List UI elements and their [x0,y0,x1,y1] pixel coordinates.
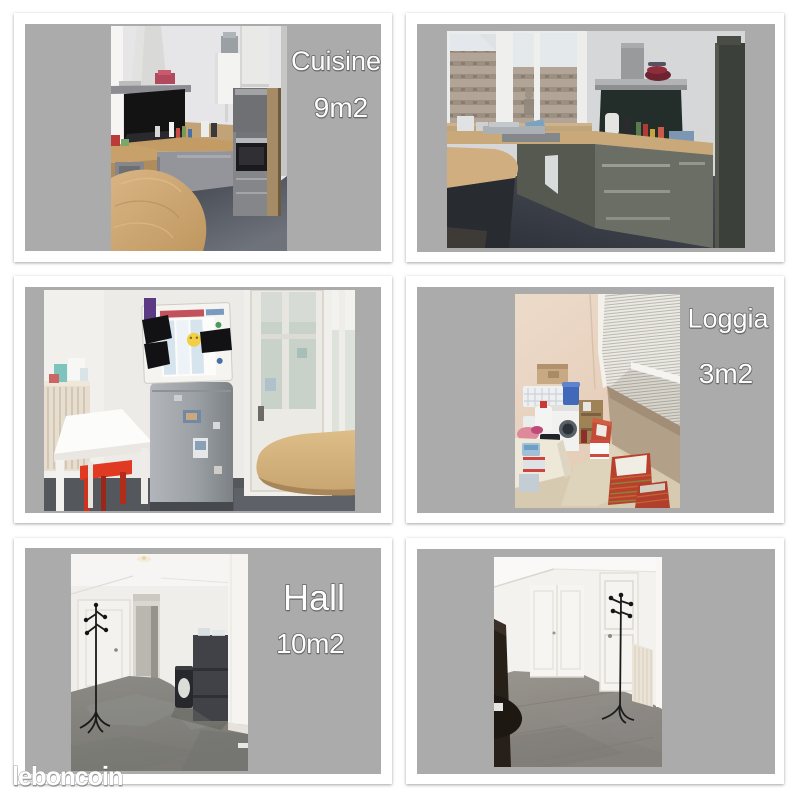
svg-text:Hall: Hall [283,577,345,618]
svg-text:Cuisine: Cuisine [291,46,381,76]
svg-text:3m2: 3m2 [699,358,753,389]
svg-text:leboncoin: leboncoin [12,761,123,791]
svg-text:Loggia: Loggia [687,304,769,334]
svg-text:9m2: 9m2 [314,92,368,123]
svg-text:10m2: 10m2 [276,628,344,659]
